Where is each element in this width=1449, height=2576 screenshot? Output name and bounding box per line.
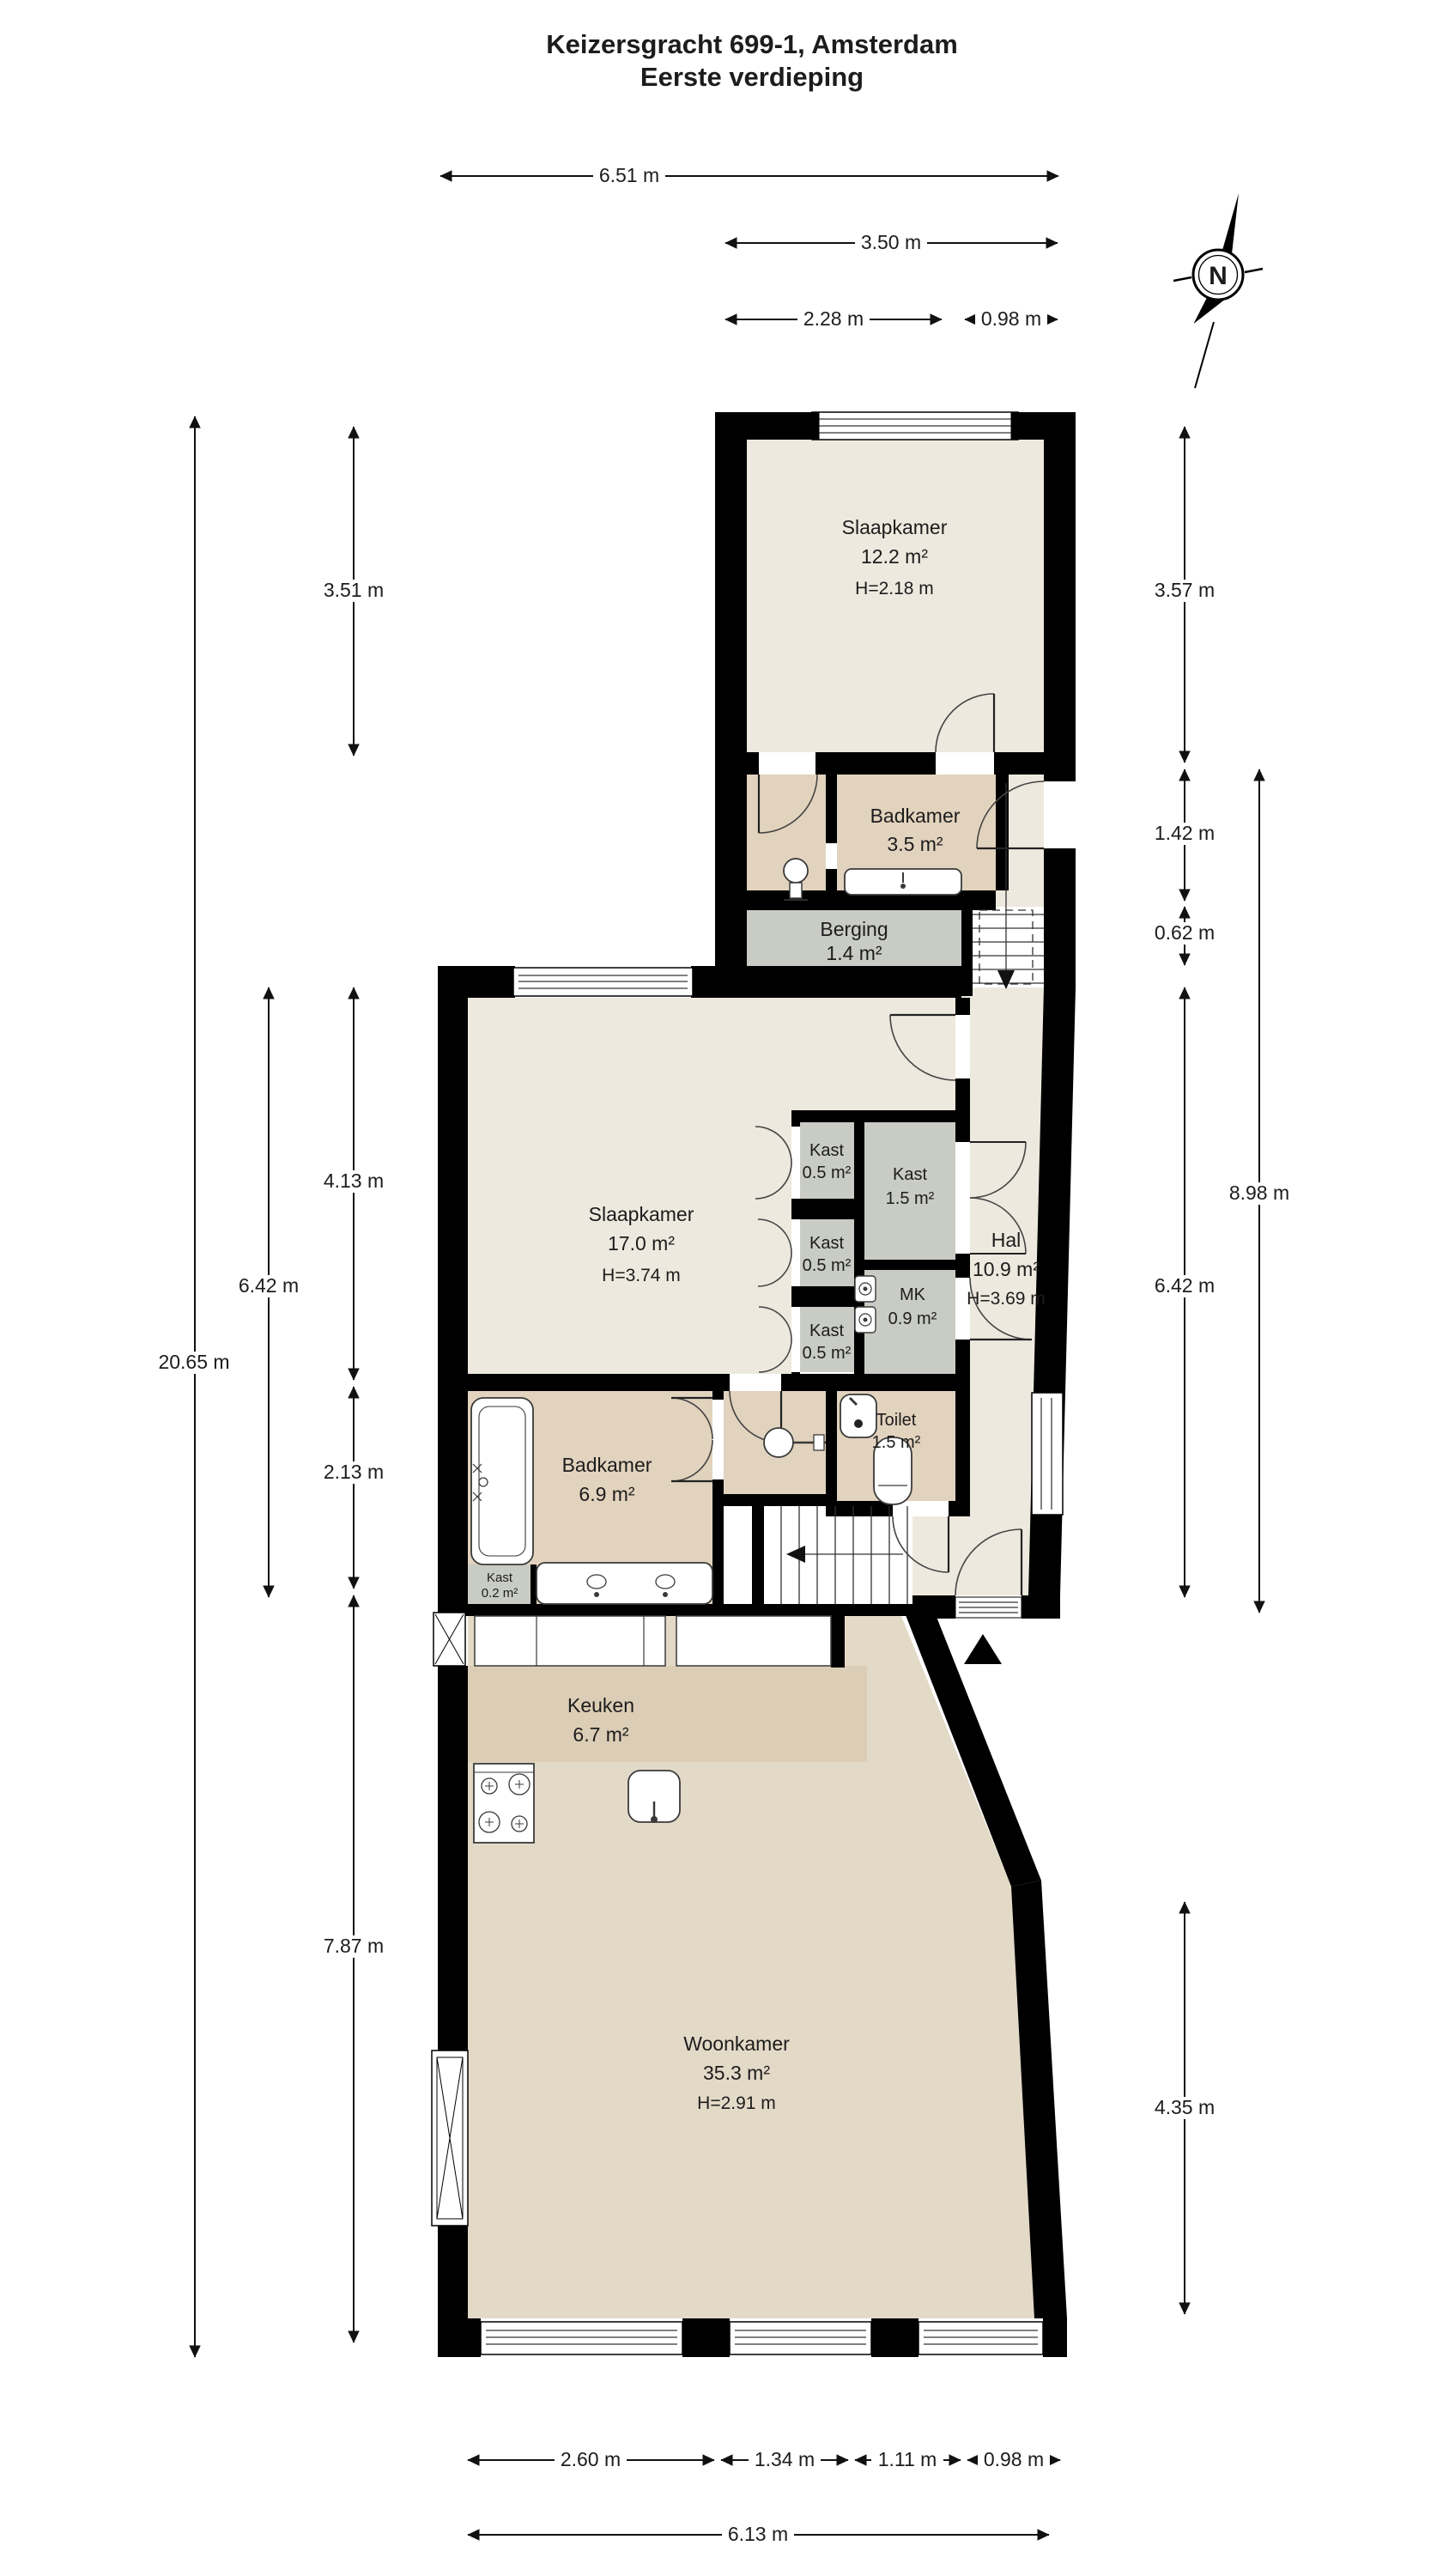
dim-left-413: 4.13 m [318, 987, 390, 1380]
window-icon [919, 2322, 1043, 2354]
floor-hal-connector [961, 987, 1044, 999]
room-area: 0.5 m² [803, 1256, 852, 1275]
room-name: Woonkamer [683, 2032, 790, 2055]
room-area: 6.9 m² [579, 1483, 635, 1505]
floor-kast-2 [800, 1219, 854, 1286]
room-name: Keuken [567, 1694, 634, 1716]
kitchen-sink-icon [628, 1771, 680, 1823]
plan-title: Keizersgracht 699-1, Amsterdam Eerste ve… [546, 29, 958, 92]
room-area: 0.2 m² [482, 1586, 518, 1601]
sink-vanity-icon [845, 869, 961, 895]
north-compass: N [1173, 190, 1263, 388]
room-name: Slaapkamer [842, 516, 948, 538]
room-area: 17.0 m² [608, 1232, 675, 1255]
window-icon [812, 412, 1018, 440]
dim-label: 6.42 m [239, 1274, 299, 1297]
dim-label: 6.51 m [599, 164, 659, 186]
dim-label: 2.60 m [561, 2448, 621, 2470]
floorplan-page: Slaapkamer 12.2 m² H=2.18 m Badkamer 3.5… [0, 0, 1449, 2576]
room-area: 0.5 m² [803, 1344, 852, 1363]
room-height: H=3.74 m [602, 1266, 681, 1285]
dim-top-228: 2.28 m [725, 307, 942, 331]
dim-right-357: 3.57 m [1149, 427, 1221, 762]
room-area: 1.5 m² [886, 1189, 935, 1208]
bathtub-icon [471, 1398, 533, 1564]
room-area: 1.5 m² [872, 1433, 921, 1452]
page-subtitle: Eerste verdieping [640, 62, 864, 92]
dim-label: 8.98 m [1229, 1182, 1289, 1204]
room-name: Badkamer [870, 805, 961, 827]
room-name: Kast [893, 1165, 927, 1184]
dim-label: 2.13 m [324, 1461, 384, 1483]
room-name: Kast [809, 1321, 844, 1340]
dim-left-2065: 20.65 m [151, 416, 237, 2357]
dim-right-142: 1.42 m [1149, 769, 1221, 901]
dim-bottom-613: 6.13 m [468, 2523, 1049, 2546]
room-area: 0.5 m² [803, 1163, 852, 1182]
hatched-window-icon [433, 1613, 465, 1666]
dim-label: 6.42 m [1155, 1274, 1215, 1297]
stove-icon [474, 1764, 534, 1843]
floor-stairs-lower [764, 1506, 912, 1604]
room-name: Kast [487, 1571, 513, 1585]
window-icon [730, 2322, 871, 2354]
room-name: Hal [991, 1229, 1022, 1251]
door-gap [1044, 781, 1076, 848]
dim-top-350: 3.50 m [725, 231, 1058, 254]
floor-keuken [468, 1666, 867, 1762]
dim-right-435: 4.35 m [1149, 1902, 1221, 2314]
dim-bottom-098: 0.98 m [967, 2448, 1060, 2471]
dim-label: 7.87 m [324, 1935, 384, 1957]
corner-sink-icon [840, 1394, 876, 1437]
dim-label: 1.42 m [1155, 822, 1215, 844]
room-height: H=3.69 m [967, 1289, 1046, 1309]
window-icon [1032, 1393, 1063, 1515]
dim-label: 3.51 m [324, 579, 384, 601]
room-area: 3.5 m² [887, 833, 943, 855]
entrance-marker-icon [964, 1634, 1002, 1664]
room-height: H=2.91 m [697, 2093, 776, 2113]
room-area: 6.7 m² [573, 1723, 629, 1746]
room-name: Kast [809, 1234, 844, 1253]
double-sink-vanity-icon [537, 1563, 712, 1604]
dim-bottom-260: 2.60 m [468, 2448, 714, 2471]
room-name: Badkamer [562, 1454, 652, 1476]
entrance-threshold-icon [955, 1597, 1022, 1618]
compass-tick-west [1173, 277, 1191, 281]
dim-bottom-111: 1.11 m [855, 2448, 961, 2471]
floor-kast-1 [800, 1122, 854, 1199]
dim-label: 4.13 m [324, 1170, 384, 1192]
room-name: Kast [809, 1141, 844, 1160]
window-icon [481, 2322, 682, 2354]
room-name: Slaapkamer [589, 1203, 694, 1225]
room-area: 0.9 m² [888, 1309, 937, 1328]
dim-left-213: 2.13 m [318, 1387, 390, 1589]
room-area: 10.9 m² [973, 1258, 1040, 1280]
dim-right-062: 0.62 m [1149, 907, 1221, 965]
room-area: 1.4 m² [826, 942, 882, 964]
dim-label: 0.98 m [981, 307, 1041, 330]
dim-left-642: 6.42 m [233, 987, 305, 1597]
room-height: H=2.18 m [855, 579, 934, 598]
dim-label: 20.65 m [158, 1351, 229, 1373]
kitchen-cabinet-icon [475, 1616, 831, 1666]
dim-right-898: 8.98 m [1223, 769, 1295, 1613]
dim-label: 3.50 m [861, 231, 921, 253]
dim-label: 1.34 m [755, 2448, 815, 2470]
dim-label: 2.28 m [803, 307, 864, 330]
dim-label: 4.35 m [1155, 2096, 1215, 2118]
dim-label: 3.57 m [1155, 579, 1215, 601]
hatched-window-icon [432, 2050, 468, 2226]
room-name: Berging [820, 918, 888, 940]
page-title: Keizersgracht 699-1, Amsterdam [546, 29, 958, 59]
dim-top-098: 0.98 m [965, 307, 1058, 331]
dim-right-642: 6.42 m [1149, 987, 1221, 1597]
compass-tick-east [1245, 269, 1263, 272]
room-area: 35.3 m² [703, 2062, 770, 2084]
dim-label: 0.62 m [1155, 921, 1215, 944]
window-icon [513, 968, 693, 996]
room-name: MK [900, 1285, 926, 1304]
compass-tail [1195, 322, 1214, 388]
compass-north-label: N [1209, 262, 1228, 290]
dim-label: 1.11 m [878, 2448, 937, 2470]
room-label-kast-klein: Kast 0.2 m² [482, 1571, 518, 1601]
room-area: 12.2 m² [861, 545, 928, 568]
dim-label: 0.98 m [984, 2448, 1044, 2470]
room-name: Toilet [876, 1411, 917, 1430]
floorplan-drawing: Slaapkamer 12.2 m² H=2.18 m Badkamer 3.5… [0, 0, 1449, 2576]
dim-bottom-134: 1.34 m [721, 2448, 848, 2471]
dim-label: 6.13 m [728, 2523, 788, 2545]
dim-left-351: 3.51 m [318, 427, 390, 756]
dim-top-651: 6.51 m [440, 164, 1058, 187]
dim-left-787: 7.87 m [318, 1595, 390, 2342]
